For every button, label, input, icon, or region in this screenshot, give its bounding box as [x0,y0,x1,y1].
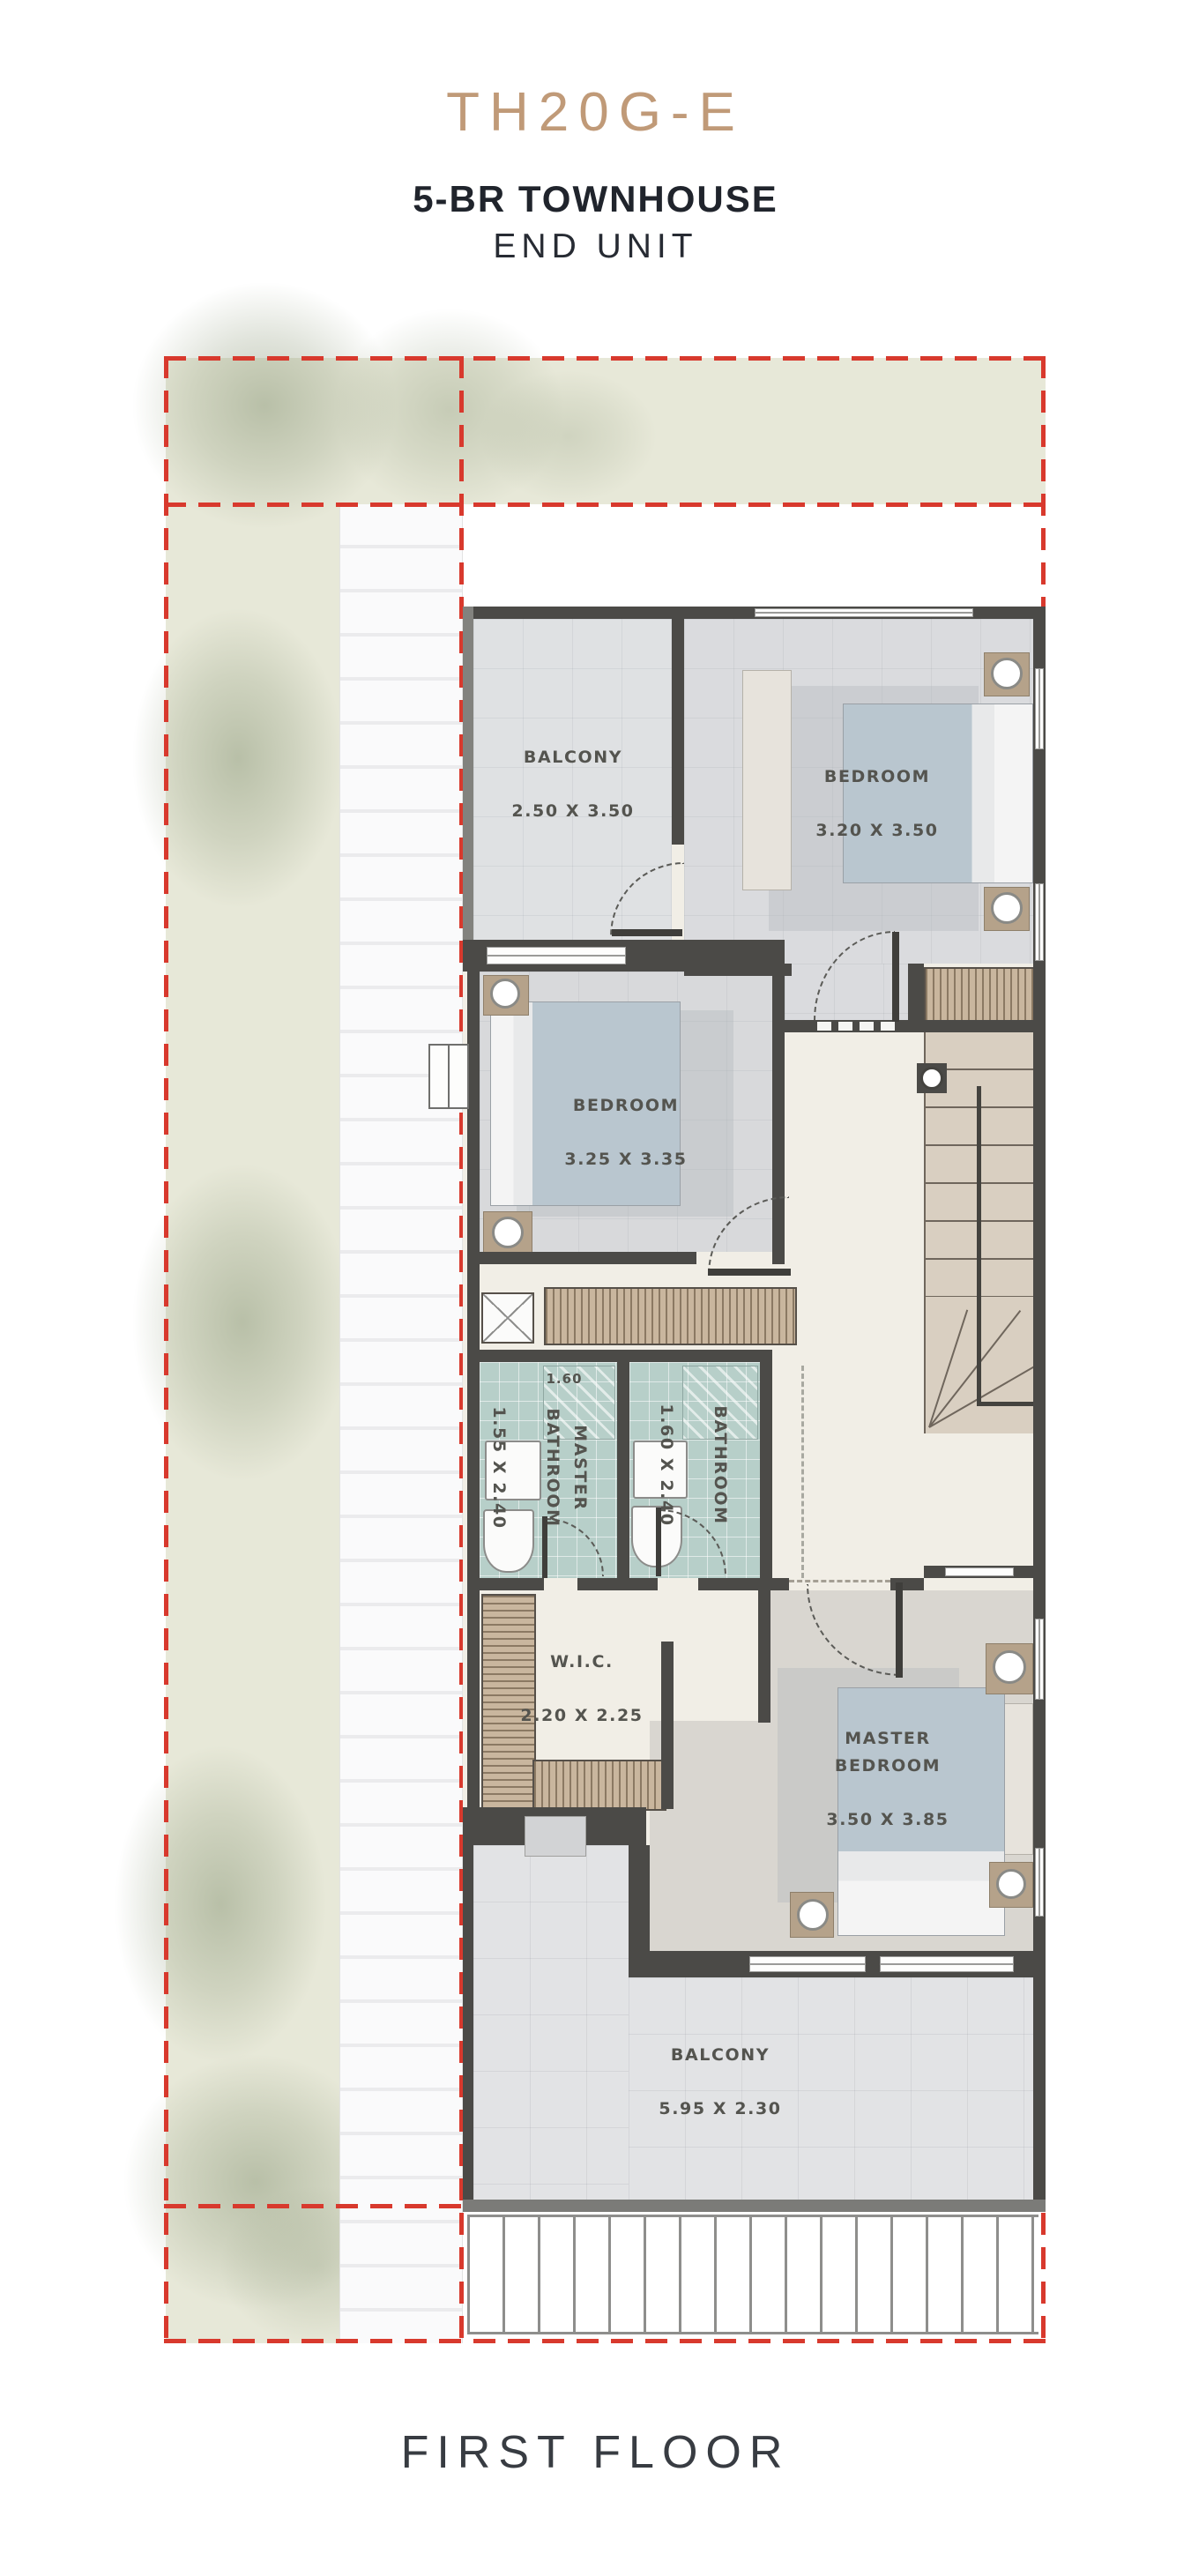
window [749,1956,866,1972]
wall-opening-dashed [817,1022,897,1031]
opening-dashed-line [789,1580,890,1582]
room-name: BEDROOM [815,763,938,790]
service-shaft [481,1292,534,1344]
room-name: MASTER BEDROOM [804,1725,971,1779]
paver-walkway [339,504,463,2343]
tree-canopy [480,370,657,503]
understair-door [945,1567,1014,1576]
room-dims: 2.50 X 3.50 [511,798,634,824]
door-leaf [896,1582,903,1678]
wall [467,940,480,1820]
room-name: BALCONY [511,744,634,771]
room-label-master-bedroom: MASTER BEDROOM 3.50 X 3.85 [804,1699,971,1859]
room-dims: 3.20 X 3.50 [815,817,938,844]
wardrobe [742,670,792,890]
wall [661,1642,674,1809]
room-dims: 1.55 X 2.40 [486,1402,512,1534]
room-name: BEDROOM [564,1092,687,1119]
lamp [797,1899,829,1931]
wall [480,1252,696,1264]
window [1035,883,1044,961]
plot-boundary-bottom [164,2339,1046,2343]
wall [463,1845,473,2200]
wall [672,607,684,845]
room-label-bedroom2: BEDROOM 3.20 X 3.50 [815,737,938,871]
stair-railing-foot [977,1402,1033,1406]
wall [467,1578,544,1590]
lamp [993,1650,1026,1684]
lamp [991,658,1023,689]
room-dims: 3.50 X 3.85 [804,1805,971,1832]
room-label-balcony-top: BALCONY 2.50 X 3.50 [511,718,634,852]
window [487,947,626,964]
unit-variant-subheading: END UNIT [0,227,1191,266]
room-label-master-bathroom: MASTER BATHROOM 1.55 X 2.40 [459,1402,620,1534]
door-step [525,1816,586,1857]
floor-title: FIRST FLOOR [0,2426,1191,2479]
room-name: BALCONY [659,2042,781,2068]
lamp [991,892,1023,924]
plot-boundary-inner-bottom [164,2204,465,2208]
plot-boundary-inner-top [164,503,1046,507]
dimension-annotation: 1.60 [546,1371,582,1387]
wardrobe-hatch-upper [924,967,1037,1022]
room-label-balcony-bottom: BALCONY 5.95 X 2.30 [659,2015,781,2149]
balcony-railing [467,2215,1038,2334]
room-name: MASTER BATHROOM [540,1402,593,1534]
plot-boundary-left [164,356,168,2343]
tree-canopy [115,1746,326,2063]
door-leaf [892,932,899,1022]
lamp [996,1869,1026,1899]
wall [758,1590,770,1723]
window [755,608,973,617]
wardrobe-hatch-corridor [544,1287,797,1345]
room-balcony-bottom-floor-left [473,1845,629,2200]
room-dims: 3.25 X 3.35 [564,1146,687,1173]
lamp [492,1217,524,1248]
lamp [490,979,520,1009]
window [1035,668,1044,749]
opening-dashed-line [801,1366,804,1578]
wall [577,1578,658,1590]
window [1035,1619,1044,1700]
room-dims: 2.20 X 2.25 [520,1702,643,1729]
wall [760,1578,789,1590]
wall [760,1362,772,1590]
room-label-bedroom3: BEDROOM 3.25 X 3.35 [564,1066,687,1200]
room-name: W.I.C. [520,1649,643,1675]
stair-newel-post [920,1067,943,1090]
room-name: BATHROOM [706,1399,733,1531]
balcony-parapet [463,607,473,940]
wardrobe-hatch-wic-bottom [532,1760,666,1811]
plot-boundary-top [164,356,1046,361]
window-bay [428,1044,469,1109]
room-dims: 5.95 X 2.30 [659,2096,781,2122]
wall [908,964,924,1025]
door-leaf [708,1269,791,1276]
room-label-bathroom: BATHROOM 1.60 X 2.40 [626,1399,760,1531]
window [1035,1848,1044,1917]
room-label-wic: W.I.C. 2.20 X 2.25 [520,1622,643,1756]
window [880,1956,1014,1972]
unit-type-heading: 5-BR TOWNHOUSE [0,178,1191,220]
room-dims: 1.60 X 2.40 [652,1399,679,1531]
wall [467,1350,772,1362]
unit-code-title: TH20G-E [0,81,1191,144]
door-leaf [612,929,682,936]
wall [698,1578,760,1590]
balcony-edge-wall [463,2200,1046,2212]
floorplan-page: TH20G-E 5-BR TOWNHOUSE END UNIT [0,0,1191,2576]
stair-railing [977,1086,981,1405]
